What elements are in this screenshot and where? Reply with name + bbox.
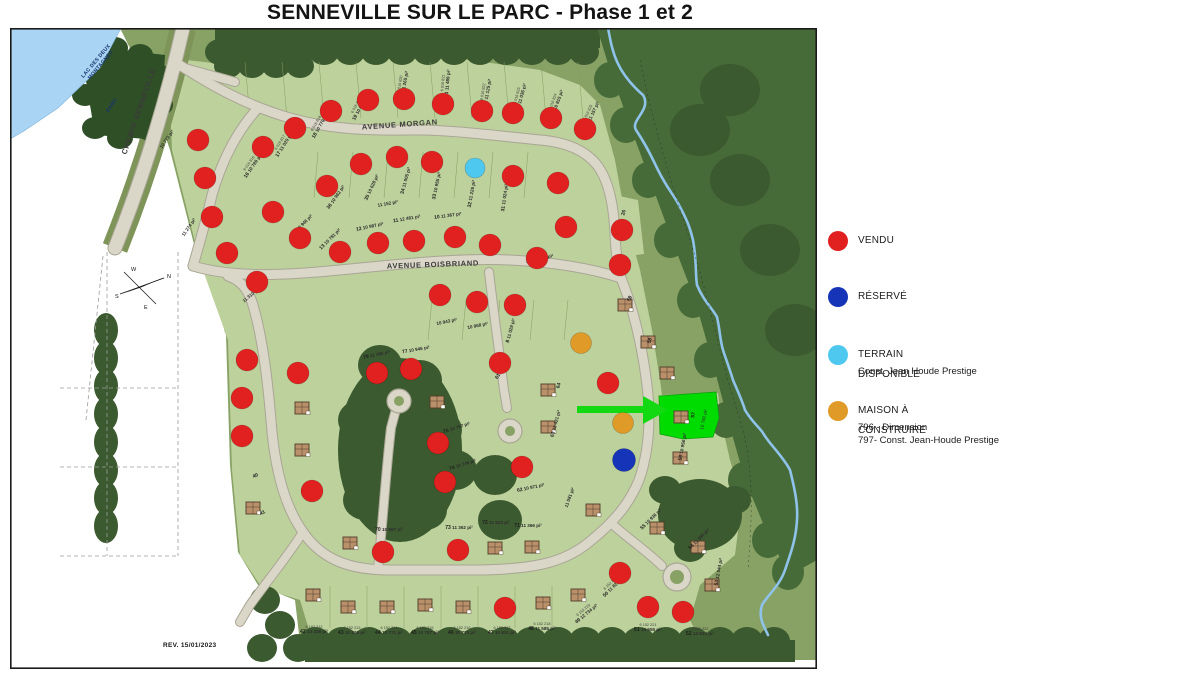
- marker-vendu: [350, 153, 372, 175]
- marker-vendu: [372, 541, 394, 563]
- marker-vendu: [246, 271, 268, 293]
- marker-vendu: [611, 219, 633, 241]
- legend-sublabel: Const. Jean Houde Prestige: [858, 365, 977, 378]
- marker-vendu: [434, 471, 456, 493]
- marker-vendu: [316, 175, 338, 197]
- house-icon: [660, 367, 675, 380]
- marker-vendu: [393, 88, 415, 110]
- marker-vendu: [252, 136, 274, 158]
- marker-vendu: [194, 167, 216, 189]
- compass-n: N: [167, 274, 171, 280]
- marker-vendu: [444, 226, 466, 248]
- marker-vendu: [489, 352, 511, 374]
- marker-vendu: [504, 294, 526, 316]
- marker-vendu: [609, 562, 631, 584]
- marker-vendu: [201, 206, 223, 228]
- compass-s: S: [115, 294, 119, 300]
- marker-vendu: [386, 146, 408, 168]
- marker-vendu: [502, 165, 524, 187]
- house-icon: [295, 444, 310, 457]
- house-icon: [343, 537, 358, 550]
- marker-vendu: [526, 247, 548, 269]
- marker-vendu: [357, 89, 379, 111]
- marker-vendu: [502, 102, 524, 124]
- marker-vendu: [637, 596, 659, 618]
- marker-vendu: [421, 151, 443, 173]
- marker-vendu: [400, 358, 422, 380]
- marker-vendu: [540, 107, 562, 129]
- house-icon: [536, 597, 551, 610]
- marker-vendu: [287, 362, 309, 384]
- marker-vendu: [284, 117, 306, 139]
- site-plan-map: 5710 780 pi² 6 016 81616 10 789 pi²6 016…: [10, 28, 817, 669]
- marker-vendu: [429, 284, 451, 306]
- house-icon: [295, 402, 310, 415]
- marker-vendu: [262, 201, 284, 223]
- marker-vendu: [466, 291, 488, 313]
- marker-vendu: [320, 100, 342, 122]
- legend-color-dot: [828, 401, 848, 421]
- marker-vendu: [447, 539, 469, 561]
- house-icon: [306, 589, 321, 602]
- legend-color-dot: [828, 345, 848, 365]
- marker-vendu: [427, 432, 449, 454]
- marker-vendu: [231, 425, 253, 447]
- house-icon: [674, 411, 689, 424]
- marker-vendu: [494, 597, 516, 619]
- marker-vendu: [574, 118, 596, 140]
- marker-vendu: [301, 480, 323, 502]
- marker-vendu: [555, 216, 577, 238]
- marker-vendu: [609, 254, 631, 276]
- house-icon: [430, 396, 445, 409]
- house-icon: [488, 542, 503, 555]
- marker-vendu: [672, 601, 694, 623]
- marker-vendu: [479, 234, 501, 256]
- marker-vendu: [187, 129, 209, 151]
- legend-color-dot: [828, 231, 848, 251]
- marker-maison-a-construire: [613, 413, 634, 434]
- compass-e: E: [144, 305, 148, 311]
- marker-reserve: [613, 449, 636, 472]
- revision-label: REV. 15/01/2023: [163, 642, 216, 649]
- page: SENNEVILLE SUR LE PARC - Phase 1 et 2: [0, 0, 1200, 677]
- legend-label: RÉSERVÉ: [858, 287, 907, 307]
- marker-maison-a-construire: [571, 333, 592, 354]
- house-icon: [650, 522, 665, 535]
- house-icon: [541, 384, 556, 397]
- legend-sublabel: 796 - Dimension797- Const. Jean-Houde Pr…: [858, 421, 999, 447]
- marker-vendu: [511, 456, 533, 478]
- marker-vendu: [403, 230, 425, 252]
- marker-vendu: [231, 387, 253, 409]
- house-icon: [456, 601, 471, 614]
- marker-vendu: [289, 227, 311, 249]
- site-plan-canvas: 5710 780 pi² 6 016 81616 10 789 pi²6 016…: [10, 28, 817, 669]
- marker-vendu: [329, 241, 351, 263]
- legend: VENDURÉSERVÉTERRAIN DISPONIBLEConst. Jea…: [826, 0, 1196, 677]
- marker-vendu: [432, 93, 454, 115]
- marker-vendu: [367, 232, 389, 254]
- legend-color-dot: [828, 287, 848, 307]
- marker-vendu: [547, 172, 569, 194]
- page-title: SENNEVILLE SUR LE PARC - Phase 1 et 2: [0, 1, 960, 25]
- marker-vendu: [597, 372, 619, 394]
- compass-w: W: [131, 267, 137, 273]
- legend-label: VENDU: [858, 231, 894, 251]
- marker-terrain-disponible: [465, 158, 485, 178]
- house-icon: [341, 601, 356, 614]
- highlighted-lot[interactable]: [659, 392, 719, 439]
- marker-vendu: [366, 362, 388, 384]
- house-icon: [380, 601, 395, 614]
- marker-vendu: [216, 242, 238, 264]
- marker-vendu: [471, 100, 493, 122]
- house-icon: [418, 599, 433, 612]
- house-icon: [571, 589, 586, 602]
- house-icon: [586, 504, 601, 517]
- house-icon: [525, 541, 540, 554]
- marker-vendu: [236, 349, 258, 371]
